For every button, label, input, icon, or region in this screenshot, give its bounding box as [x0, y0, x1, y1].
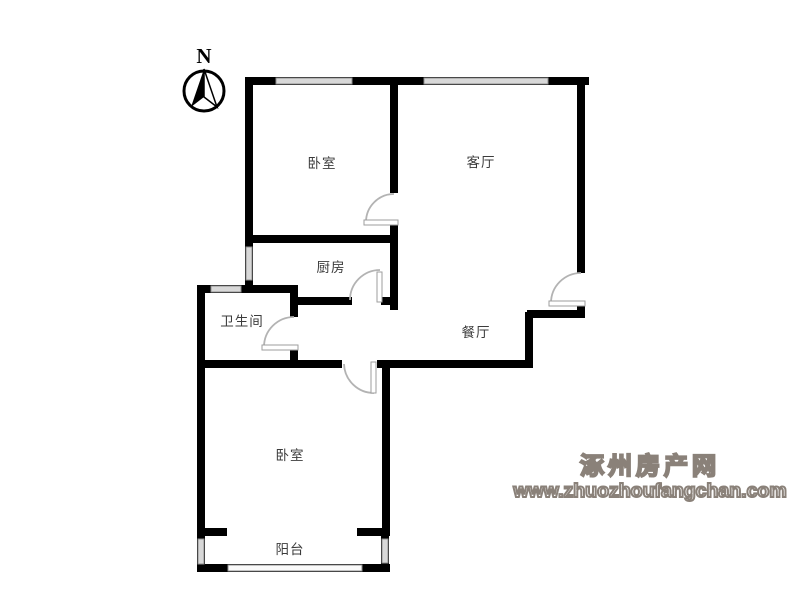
wall-east-upper [577, 77, 585, 273]
room-label-bedroom-top: 卧室 [274, 154, 370, 174]
wall-bedroom2-east [382, 360, 390, 536]
room-label-living-room: 客厅 [433, 153, 529, 173]
door-leaf-entrance [549, 301, 585, 306]
wall-step-horizontal [527, 310, 585, 318]
door-arc-entrance [551, 273, 581, 303]
window-bathroom-top [211, 286, 241, 292]
room-label-bathroom: 卫生间 [194, 312, 290, 332]
floor-plan-drawing [0, 0, 800, 600]
wall-dining-south [377, 360, 530, 368]
room-label-balcony: 阳台 [242, 540, 338, 560]
window-balcony-south [228, 565, 362, 571]
wall-bedroom1-south [245, 235, 398, 243]
wall-kitchen-hinge-piece [381, 297, 398, 305]
room-label-dining-room: 餐厅 [428, 323, 524, 343]
room-label-bedroom-bottom: 卧室 [242, 446, 338, 466]
door-arc-bedroom1 [366, 194, 394, 222]
watermark-site-name: 涿州房产网 [505, 453, 795, 480]
wall-mid-column-upper [390, 77, 398, 193]
window-living-top [424, 78, 548, 84]
window-balcony-west [198, 539, 204, 564]
compass-icon [184, 69, 224, 111]
door-leaf-bedroom2 [371, 362, 376, 393]
watermark: 涿州房产网 www.zhuozhoufangchan.com [505, 453, 795, 502]
wall-step-vertical [525, 312, 533, 368]
door-leaf-bathroom [262, 345, 298, 350]
wall-mid-column-lower [390, 222, 398, 310]
wall-hall-south [197, 360, 342, 368]
window-kitchen-west [246, 247, 252, 280]
window-bedroom1-top [276, 78, 352, 84]
compass-north-label: N [190, 44, 218, 68]
floor-plan-canvas: N 卧室 客厅 厨房 卫生间 餐厅 卧室 阳台 涿州房产网 www.zhuozh… [0, 0, 800, 600]
watermark-site-url: www.zhuozhoufangchan.com [505, 480, 795, 502]
window-balcony-east [382, 539, 388, 563]
door-leaf-bedroom1 [364, 220, 398, 225]
wall-kitchen-south [293, 297, 352, 305]
door-arc-bedroom2 [344, 364, 374, 393]
room-label-kitchen: 厨房 [283, 258, 379, 278]
